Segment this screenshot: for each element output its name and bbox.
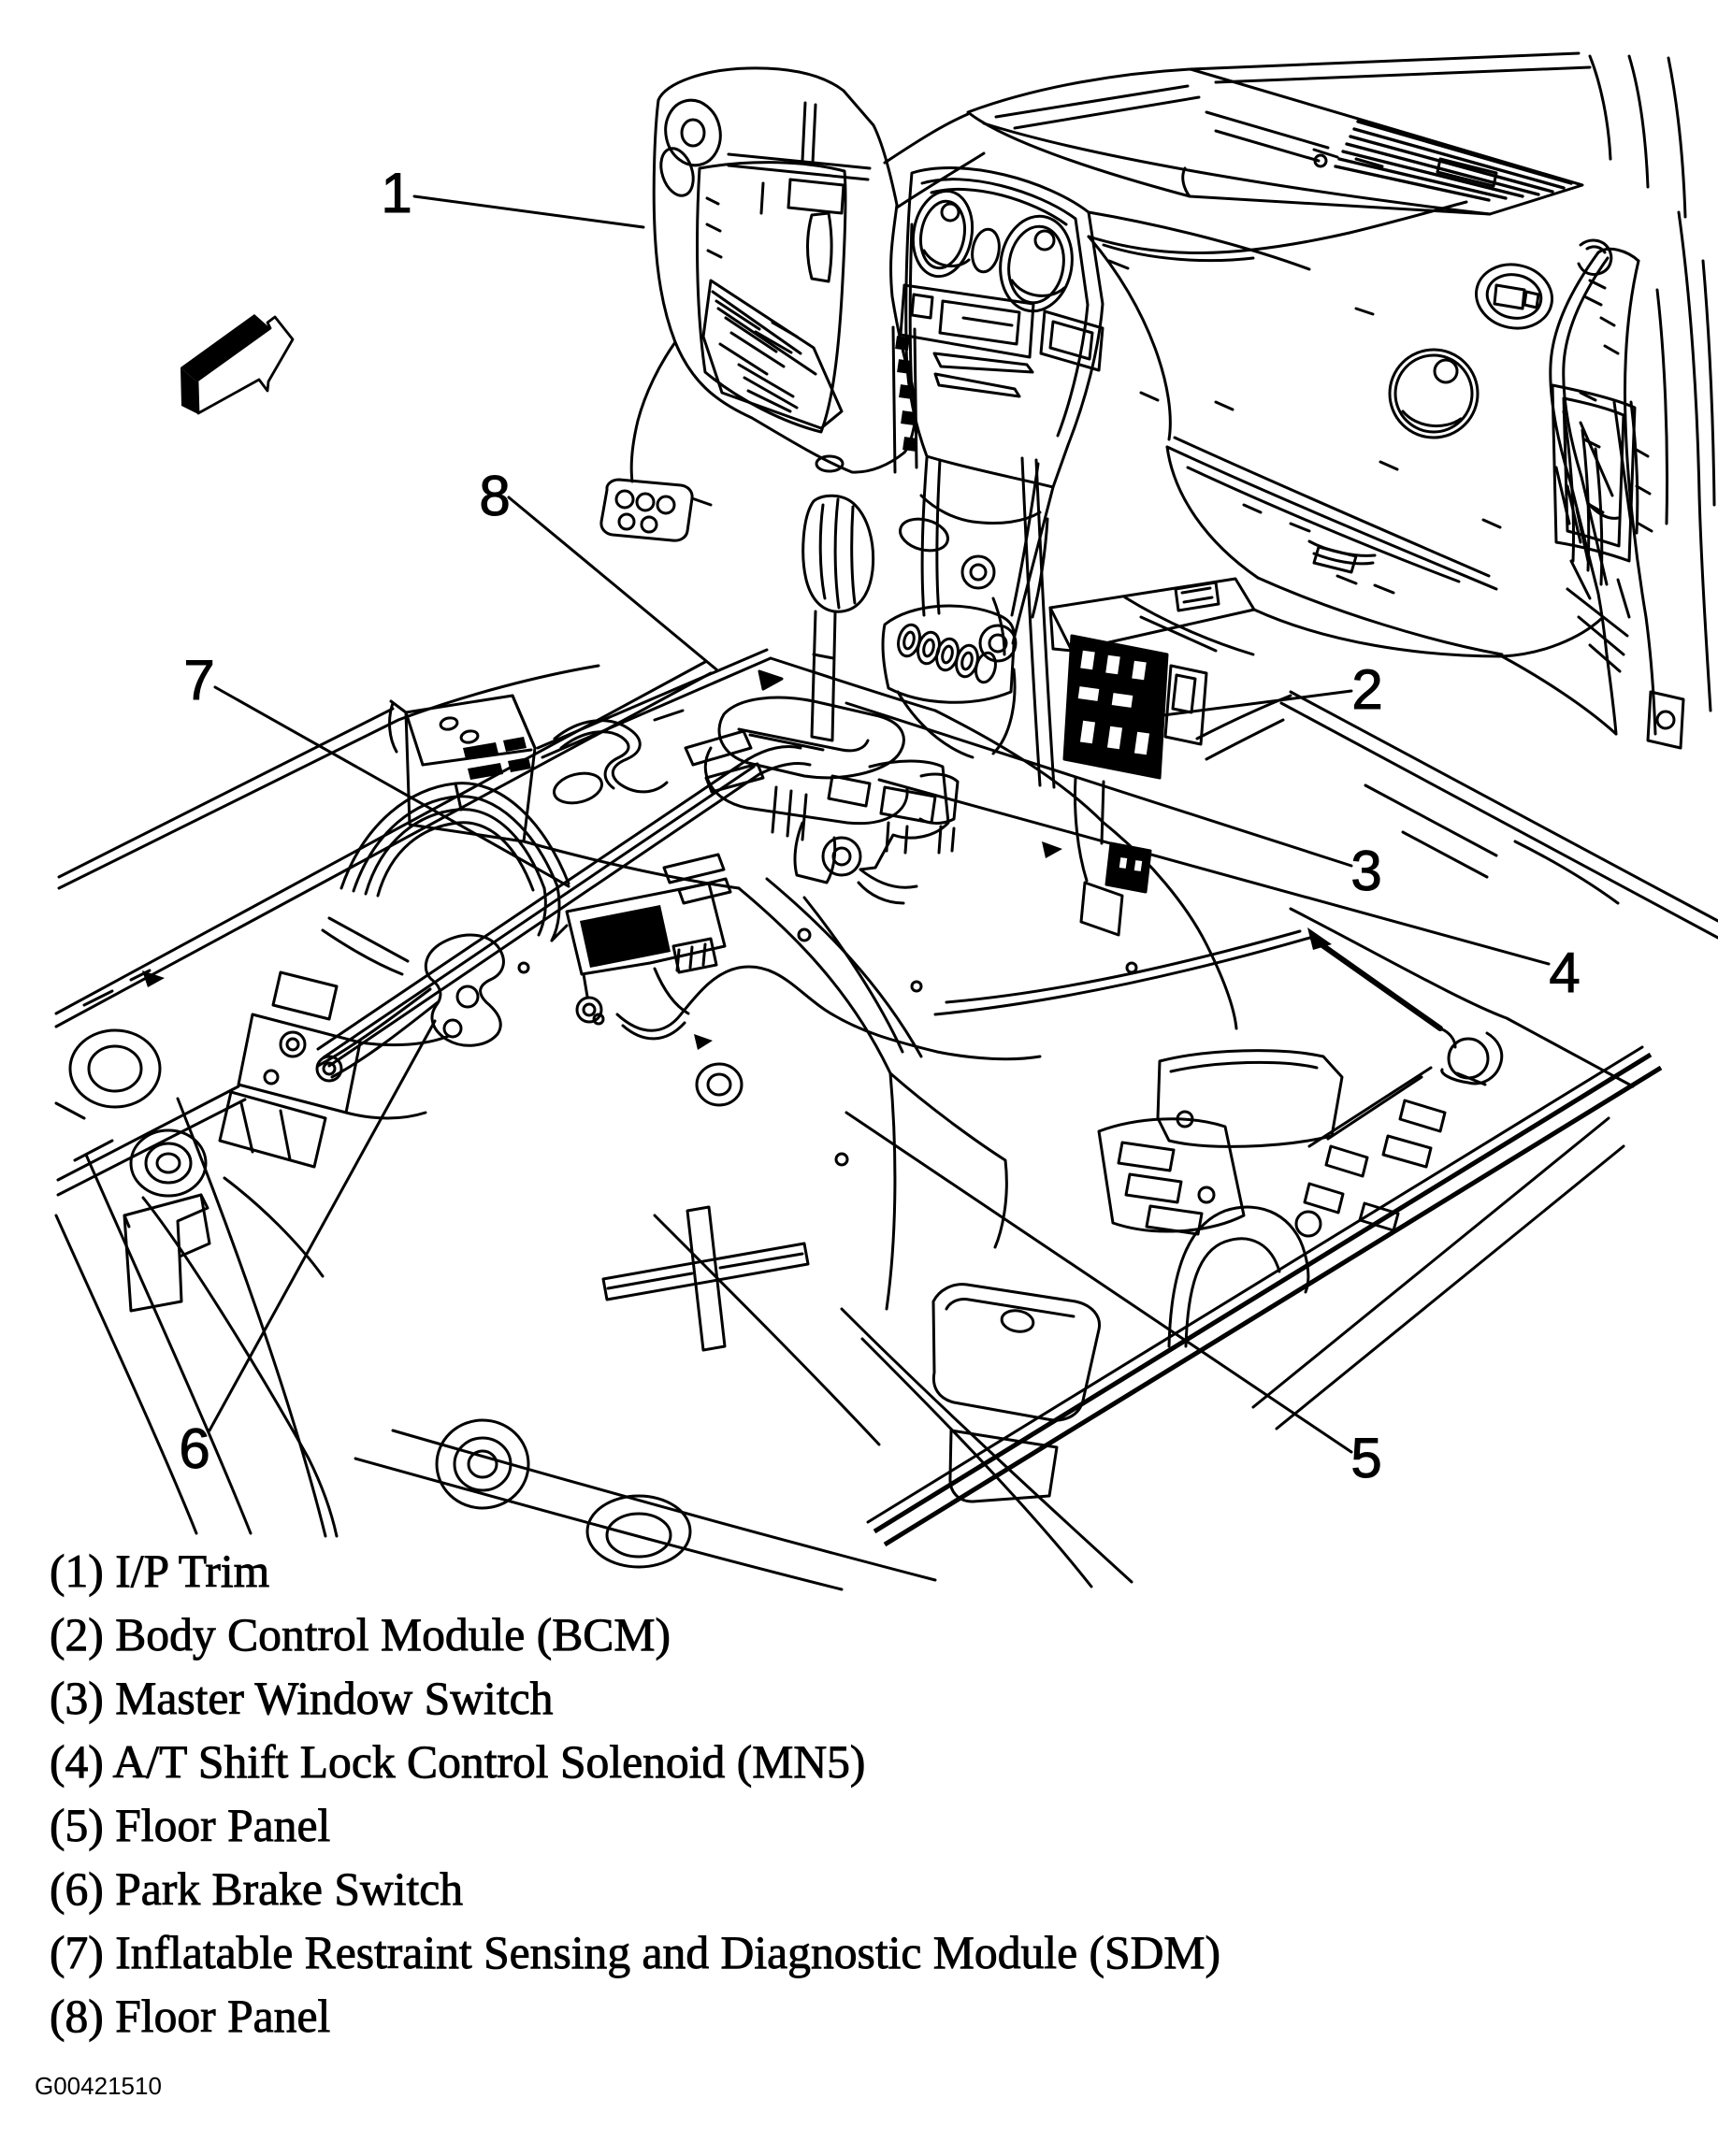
svg-text:(4) A/T Shift Lock Control Sol: (4) A/T Shift Lock Control Solenoid (MN5… <box>50 1736 865 1788</box>
svg-text:5: 5 <box>1350 1427 1381 1489</box>
svg-text:2: 2 <box>1351 658 1382 721</box>
svg-text:(8) Floor Panel: (8) Floor Panel <box>50 1991 330 2042</box>
svg-text:(2) Body Control Module (BCM): (2) Body Control Module (BCM) <box>50 1609 671 1660</box>
svg-text:1: 1 <box>381 162 411 224</box>
svg-text:(7) Inflatable Restraint Sensi: (7) Inflatable Restraint Sensing and Dia… <box>50 1927 1220 1978</box>
svg-text:(3) Master Window Switch: (3) Master Window Switch <box>50 1673 554 1724</box>
svg-text:7: 7 <box>183 649 214 711</box>
svg-text:(6) Park Brake Switch: (6) Park Brake Switch <box>50 1863 463 1915</box>
svg-text:(5) Floor Panel: (5) Floor Panel <box>50 1800 330 1851</box>
svg-text:G00421510: G00421510 <box>35 2072 162 2100</box>
svg-text:8: 8 <box>479 465 510 527</box>
svg-text:3: 3 <box>1350 840 1381 902</box>
svg-text:(1) I/P Trim: (1) I/P Trim <box>50 1545 269 1597</box>
svg-text:4: 4 <box>1549 941 1580 1004</box>
